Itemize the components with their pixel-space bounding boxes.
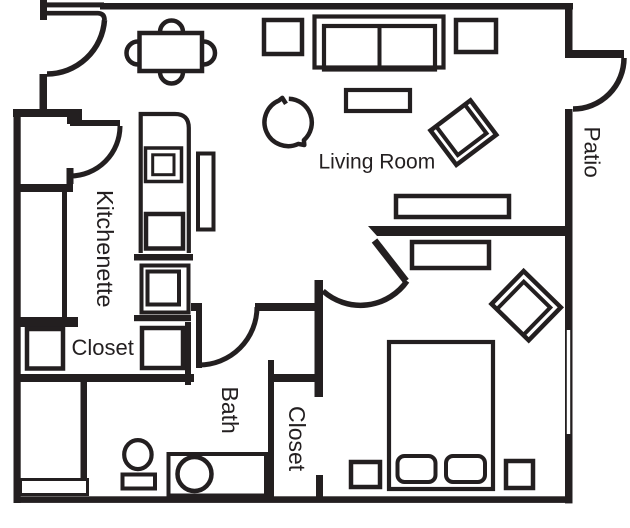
svg-text:Patio: Patio [580,127,605,178]
svg-text:Bath: Bath [217,387,243,434]
svg-text:Kitchenette: Kitchenette [92,190,118,308]
svg-text:Living Room: Living Room [319,150,436,173]
svg-text:Closet: Closet [284,406,310,472]
svg-text:Closet: Closet [72,335,134,360]
